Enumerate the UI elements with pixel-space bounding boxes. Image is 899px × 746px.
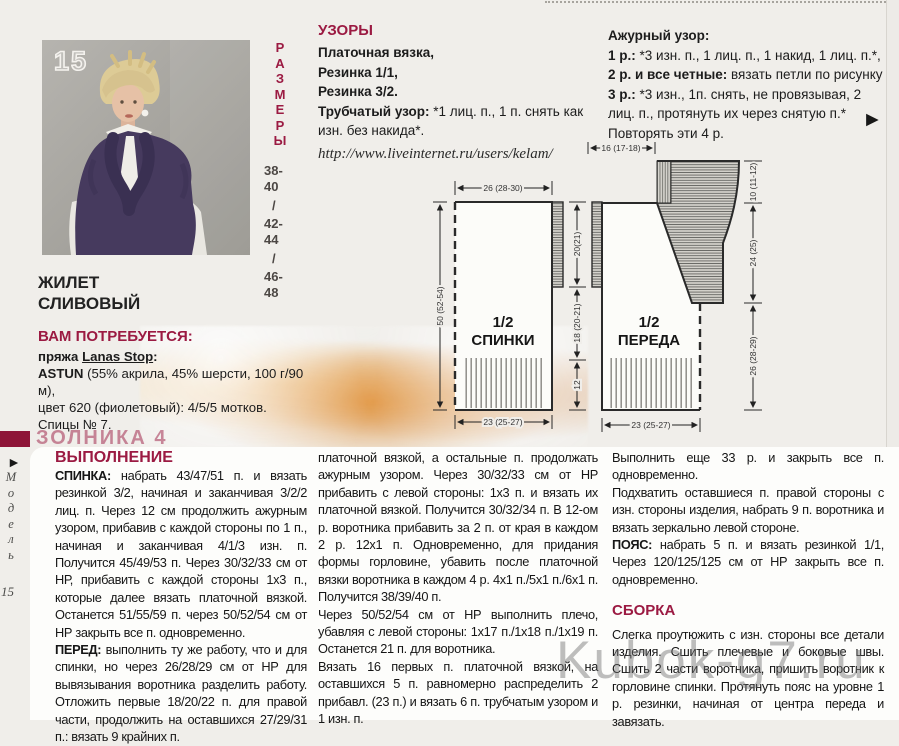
- svg-text:1/2: 1/2: [493, 314, 514, 331]
- front-instructions: ПЕРЕД: выполнить ту же работу, что и для…: [55, 641, 307, 745]
- svg-text:СПИНКИ: СПИНКИ: [471, 332, 534, 349]
- instructions-column-1: СПИНКА: набрать 43/47/51 п. и вязать рез…: [55, 467, 307, 746]
- svg-text:26 (28-29): 26 (28-29): [748, 336, 758, 375]
- yarn-color-line: цвет 620 (фиолетовый): 4/5/5 мотков.: [38, 399, 308, 416]
- pointer-triangle-icon: ►: [862, 110, 883, 130]
- knitting-schematics: 1/2 СПИНКИ 26 (28-30) 50 (52-54) 23 (25-…: [430, 140, 782, 445]
- front-edge-strip: [592, 202, 602, 287]
- margin-model-label: М о д е л ь: [3, 470, 19, 563]
- margin-model-number: 15: [1, 584, 14, 600]
- svg-text:1/2: 1/2: [639, 314, 660, 331]
- sizes-values: 38- 40 / 42- 44 / 46- 48: [264, 163, 296, 301]
- svg-text:26 (28-30): 26 (28-30): [483, 183, 522, 193]
- svg-text:16 (17-18): 16 (17-18): [601, 143, 640, 153]
- back-side-dimensions: 20(21) 18 (20-21) 12: [569, 202, 586, 410]
- site-watermark: Kubok-g7.ru: [556, 630, 867, 691]
- svg-text:23 (25-27): 23 (25-27): [483, 417, 522, 427]
- back-collar-strip: [552, 202, 563, 287]
- section-pointer-icon: ►: [7, 452, 21, 472]
- openwork-row3: 3 р.: *3 изн., 1п. снять, не провязывая,…: [608, 85, 884, 124]
- svg-text:20(21): 20(21): [572, 232, 582, 257]
- patterns-section: УЗОРЫ Платочная вязка, Резинка 1/1, Рези…: [318, 22, 596, 141]
- front-ribbing-hatch: [608, 358, 695, 408]
- photo-number-label: 15: [54, 46, 88, 77]
- svg-text:18 (20-21): 18 (20-21): [572, 303, 582, 342]
- svg-text:ПЕРЕДА: ПЕРЕДА: [618, 332, 680, 349]
- tubular-pattern-line: Трубчатый узор: *1 лиц. п., 1 п. снять к…: [318, 102, 596, 141]
- margin-accent-bar: [0, 431, 30, 447]
- front-piece-schematic: 1/2 ПЕРЕДА 16 (17-18) 23 (25-27) 10 (11-…: [588, 142, 762, 432]
- svg-text:50 (52-54): 50 (52-54): [435, 286, 445, 325]
- earring: [142, 110, 149, 117]
- yarn-composition-line: ASTUN (55% акрила, 45% шерсти, 100 г/90 …: [38, 365, 308, 399]
- yarn-brand-line: пряжа Lanas Stop:: [38, 348, 308, 365]
- front-collar-tubular-strip: [657, 161, 671, 203]
- svg-text:24 (25): 24 (25): [748, 239, 758, 266]
- back-instructions: СПИНКА: набрать 43/47/51 п. и вязать рез…: [55, 467, 307, 641]
- openwork-section: Ажурный узор: 1 р.: *3 изн. п., 1 лиц. п…: [608, 26, 884, 143]
- belt-instructions: ПОЯС: набрать 5 п. и вязать резинкой 1/1…: [612, 536, 884, 588]
- openwork-heading: Ажурный узор:: [608, 26, 884, 46]
- svg-text:10 (11-12): 10 (11-12): [748, 163, 758, 202]
- front-side-dimensions: 10 (11-12) 24 (25) 26 (28-29): [744, 161, 762, 410]
- requires-heading: ВАМ ПОТРЕБУЕТСЯ:: [38, 328, 193, 345]
- assembly-heading: СБОРКА: [612, 602, 884, 619]
- materials-block: пряжа Lanas Stop: ASTUN (55% акрила, 45%…: [38, 348, 308, 433]
- patterns-heading: УЗОРЫ: [318, 22, 596, 39]
- svg-text:23 (25-27): 23 (25-27): [631, 420, 670, 430]
- svg-text:12: 12: [572, 380, 582, 390]
- cut-dotted-line: [545, 1, 897, 3]
- back-piece-schematic: 1/2 СПИНКИ 26 (28-30) 50 (52-54) 23 (25-…: [433, 181, 586, 429]
- openwork-row2: 2 р. и все четные: вязать петли по рисун…: [608, 65, 884, 85]
- item-title: ЖИЛЕТ СЛИВОВЫЙ: [38, 272, 140, 314]
- instructions-heading: ВЫПОЛНЕНИЕ: [55, 449, 173, 467]
- openwork-row1: 1 р.: *3 изн. п., 1 лиц. п., 1 накид, 1 …: [608, 46, 884, 66]
- sizes-vertical-label: Р А З М Е Р Ы: [271, 40, 289, 149]
- back-ribbing-hatch: [462, 358, 545, 408]
